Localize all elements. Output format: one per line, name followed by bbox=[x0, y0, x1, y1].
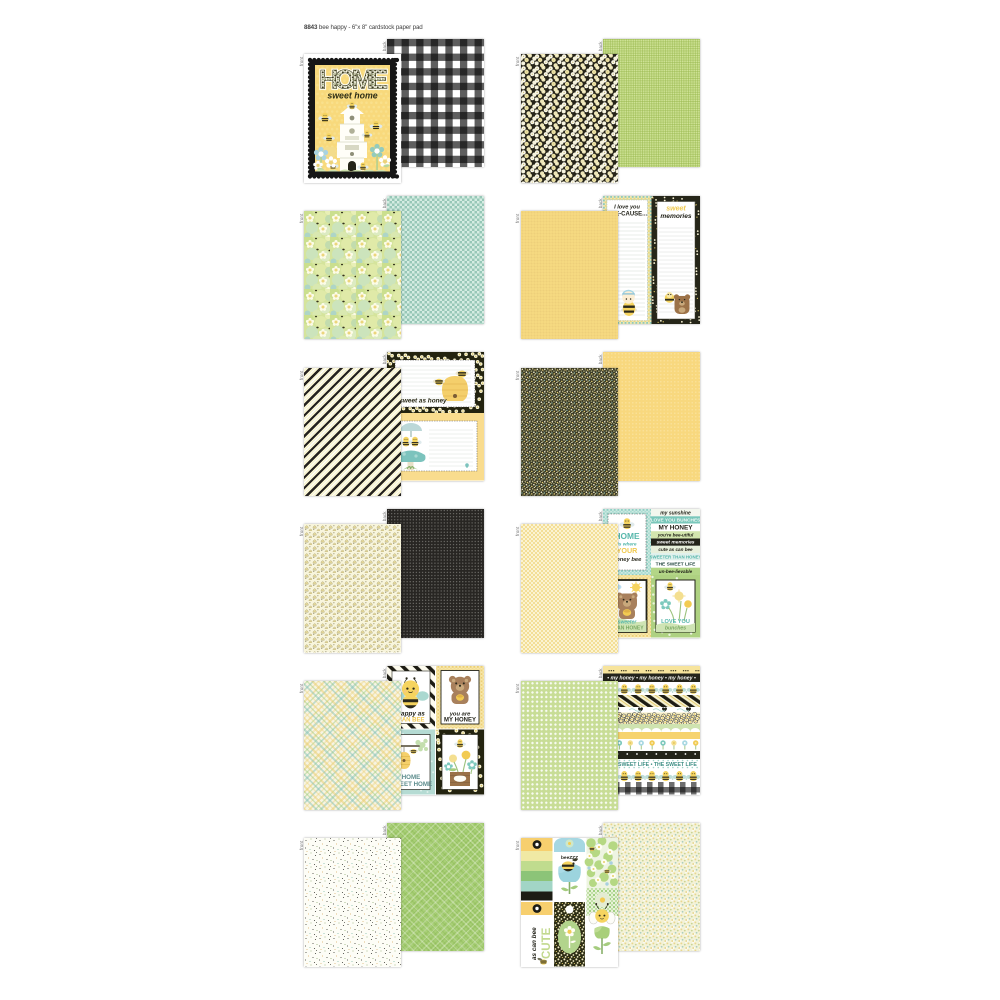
svg-text:CAN BEE: CAN BEE bbox=[397, 718, 424, 724]
svg-text:MY HONEY: MY HONEY bbox=[444, 718, 476, 724]
svg-text:YOUR: YOUR bbox=[617, 546, 639, 555]
svg-text:as can bee: as can bee bbox=[531, 927, 538, 960]
svg-text:memories: memories bbox=[661, 213, 692, 220]
svg-text:sweet memories: sweet memories bbox=[657, 540, 695, 546]
svg-text:LOVE YOU BUNCHES: LOVE YOU BUNCHES bbox=[651, 518, 700, 524]
svg-text:you're bee-utiful: you're bee-utiful bbox=[657, 532, 694, 537]
svg-text:• my honey • my honey • my hon: • my honey • my honey • my honey • bbox=[608, 676, 697, 682]
svg-text:LOVE YOU: LOVE YOU bbox=[661, 619, 690, 625]
svg-text:HOME: HOME bbox=[615, 531, 641, 541]
svg-text:sweet: sweet bbox=[667, 205, 687, 212]
svg-text:THE SWEET LIFE: THE SWEET LIFE bbox=[656, 562, 697, 568]
svg-text:happy as: happy as bbox=[397, 711, 425, 718]
svg-text:CUTE: CUTE bbox=[541, 927, 553, 959]
svg-text:HOME: HOME bbox=[402, 774, 421, 781]
svg-text:cute as can bee: cute as can bee bbox=[659, 547, 694, 552]
svg-text:I love you: I love you bbox=[614, 204, 640, 210]
svg-text:un-bee-lievable: un-bee-lievable bbox=[659, 569, 693, 574]
svg-text:my sunshine: my sunshine bbox=[661, 510, 692, 516]
svg-text:SWEETER THAN HONEY: SWEETER THAN HONEY bbox=[650, 554, 700, 559]
svg-text:sweet as honey: sweet as honey bbox=[399, 398, 447, 405]
svg-text:THE SWEET LIFE • THE SWEET LIF: THE SWEET LIFE • THE SWEET LIFE bbox=[607, 762, 698, 768]
svg-text:MY HONEY: MY HONEY bbox=[659, 525, 694, 532]
svg-text:bunches: bunches bbox=[665, 626, 686, 632]
svg-text:sweet home: sweet home bbox=[328, 91, 378, 101]
